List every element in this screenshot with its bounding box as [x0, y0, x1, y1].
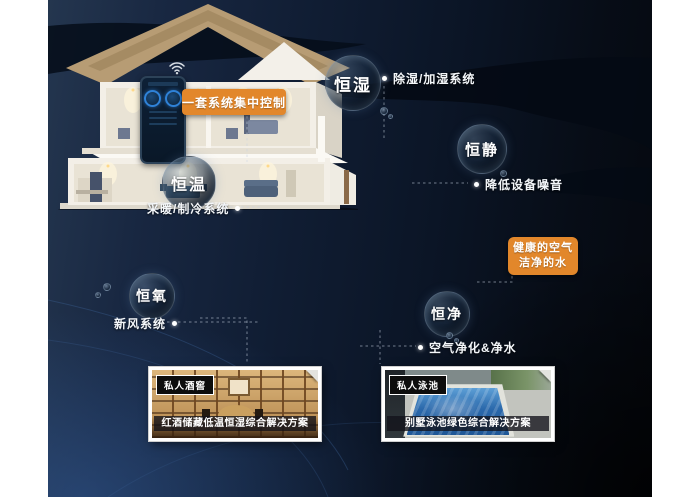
decor-bubble [380, 107, 388, 115]
highlight-line2: 洁净的水 [519, 256, 567, 271]
feature-desc-text: 降低设备噪音 [485, 176, 563, 193]
feature-desc-text: 新风系统 [114, 315, 166, 332]
poster-canvas: 一套系统集中控制 健康的空气 洁净的水 恒湿 恒静 恒温 恒氧 恒净 [48, 0, 652, 497]
air-water-highlight: 健康的空气 洁净的水 [508, 237, 578, 275]
card-pool: 私人泳池 别墅泳池绿色综合解决方案 [382, 367, 554, 441]
card-tag: 私人酒窖 [156, 375, 214, 395]
phone-screen-row [149, 123, 177, 125]
card-caption: 别墅泳池绿色综合解决方案 [387, 416, 549, 431]
feature-bubble-hengshi: 恒湿 [325, 55, 381, 111]
feature-desc-hengwen: 采暖/制冷系统 [147, 200, 240, 217]
control-panel-phone [140, 76, 186, 164]
feature-desc-hengjing2: 空气净化&净水 [418, 339, 517, 356]
card-wine-cellar: 私人酒窖 红酒储藏低温恒湿综合解决方案 [149, 367, 321, 441]
poster: 一套系统集中控制 健康的空气 洁净的水 恒湿 恒静 恒温 恒氧 恒净 [0, 0, 700, 497]
wine-cellar-photo: 私人酒窖 红酒储藏低温恒湿综合解决方案 [152, 370, 318, 438]
connector-dot [172, 321, 177, 326]
central-control-label: 一套系统集中控制 [182, 89, 286, 115]
feature-desc-text: 采暖/制冷系统 [147, 200, 229, 217]
card-tag: 私人泳池 [389, 375, 447, 395]
connector-dot [235, 206, 240, 211]
decor-bubble [388, 114, 393, 119]
corner-fold-icon [539, 370, 551, 382]
phone-screen-row [149, 111, 177, 113]
bubble-label: 恒氧 [136, 286, 168, 306]
connector-dot [474, 182, 479, 187]
feature-bubble-hengyang: 恒氧 [129, 273, 175, 319]
bubble-label: 恒湿 [334, 71, 372, 96]
feature-bubble-hengjing: 恒静 [457, 124, 507, 174]
connector-dot [418, 345, 423, 350]
wine-picture-frame [228, 378, 250, 396]
card-caption: 红酒储藏低温恒湿综合解决方案 [154, 416, 316, 431]
decor-bubble [95, 292, 101, 298]
bubble-label: 恒静 [465, 139, 499, 160]
feature-desc-text: 除湿/加湿系统 [393, 70, 475, 87]
wifi-icon [168, 61, 186, 75]
feature-bubble-hengjing2: 恒净 [424, 291, 470, 337]
connector-dot [382, 76, 387, 81]
feature-desc-text: 空气净化&净水 [429, 339, 517, 356]
phone-screen-header [148, 82, 178, 86]
dial-knob-icon [144, 90, 161, 107]
pool-photo: 私人泳池 别墅泳池绿色综合解决方案 [385, 370, 551, 438]
bubble-label: 恒温 [171, 171, 207, 195]
feature-desc-hengjing: 降低设备噪音 [474, 176, 563, 193]
phone-screen-row [149, 117, 177, 119]
feature-desc-hengyang: 新风系统 [114, 315, 177, 332]
highlight-line1: 健康的空气 [513, 241, 573, 256]
bubble-label: 恒净 [431, 304, 463, 324]
decor-bubble [103, 283, 111, 291]
corner-fold-icon [306, 370, 318, 382]
dial-knob-icon [165, 90, 182, 107]
decor-bubble [446, 332, 453, 339]
feature-desc-hengshi: 除湿/加湿系统 [382, 70, 475, 87]
